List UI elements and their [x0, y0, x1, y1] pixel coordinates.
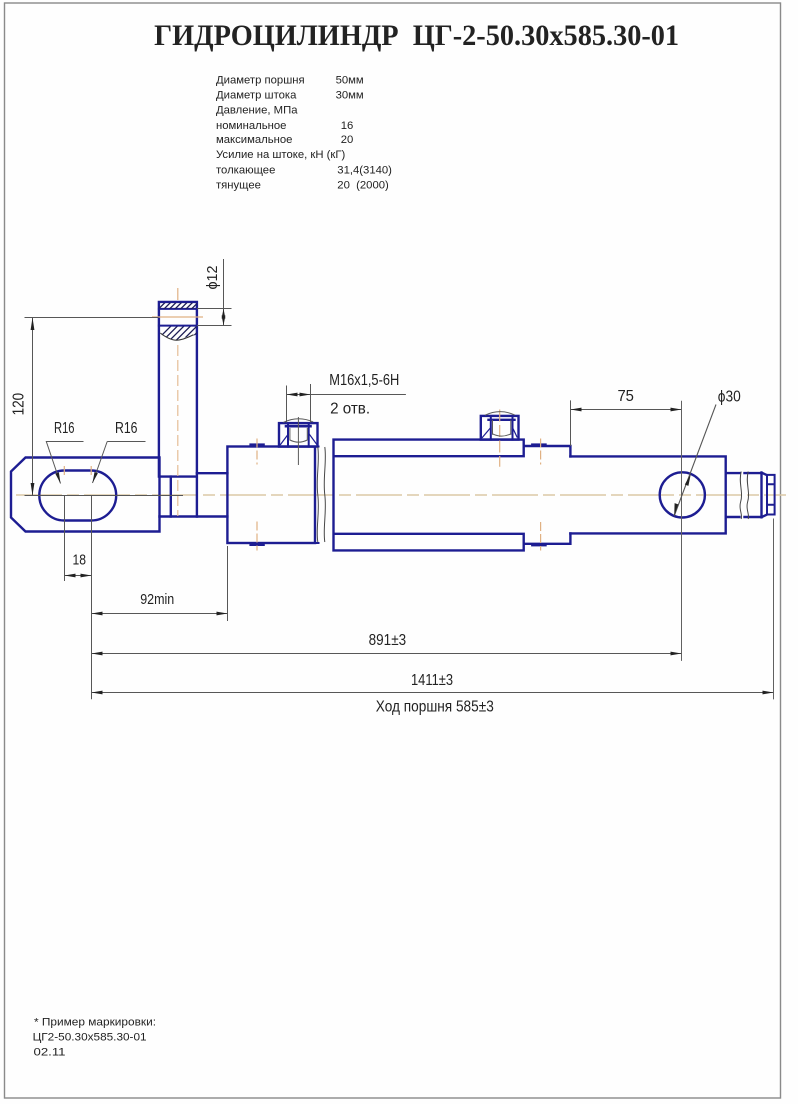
svg-text:Усилие на штоке, кН (кГ): Усилие на штоке, кН (кГ) [216, 149, 345, 161]
svg-text:1411±3: 1411±3 [411, 672, 453, 689]
svg-text:50мм: 50мм [336, 75, 364, 87]
svg-text:ГИДРОЦИЛИНДР ЦГ-2-50.30х585.3: ГИДРОЦИЛИНДР ЦГ-2-50.30х585.30-01 [154, 19, 679, 52]
svg-text:18: 18 [72, 552, 86, 569]
svg-text:92min: 92min [140, 591, 174, 608]
svg-text:16: 16 [341, 120, 354, 132]
svg-text:толкающее: толкающее [216, 165, 275, 177]
svg-text:75: 75 [617, 388, 634, 405]
svg-text:R16: R16 [115, 420, 138, 437]
svg-text:31,4(3140): 31,4(3140) [337, 165, 392, 177]
svg-text:Давление, МПа: Давление, МПа [216, 105, 298, 117]
svg-text:30мм: 30мм [336, 90, 364, 102]
svg-text:М16х1,5-6Н: М16х1,5-6Н [329, 372, 399, 389]
svg-text:R16: R16 [54, 420, 75, 437]
svg-text:Диаметр штока: Диаметр штока [216, 90, 297, 102]
svg-text:ϕ30: ϕ30 [718, 388, 741, 405]
svg-text:максимальное: максимальное [216, 134, 292, 146]
svg-text:120: 120 [11, 392, 28, 415]
svg-text:* Пример маркировки:: * Пример маркировки: [34, 1016, 156, 1028]
svg-text:02.11: 02.11 [34, 1046, 66, 1058]
svg-text:ϕ12: ϕ12 [204, 266, 221, 290]
svg-text:ЦГ2-50.30х585.30-01: ЦГ2-50.30х585.30-01 [33, 1031, 147, 1043]
svg-text:тянущее: тянущее [216, 180, 261, 192]
svg-text:номинальное: номинальное [216, 120, 286, 132]
svg-text:2 отв.: 2 отв. [330, 401, 370, 418]
svg-text:Диаметр поршня: Диаметр поршня [216, 75, 305, 87]
svg-text:20 (2000): 20 (2000) [337, 180, 389, 192]
svg-text:20: 20 [341, 134, 354, 146]
svg-text:Ход поршня 585±3: Ход поршня 585±3 [376, 698, 494, 715]
svg-text:891±3: 891±3 [369, 632, 407, 649]
